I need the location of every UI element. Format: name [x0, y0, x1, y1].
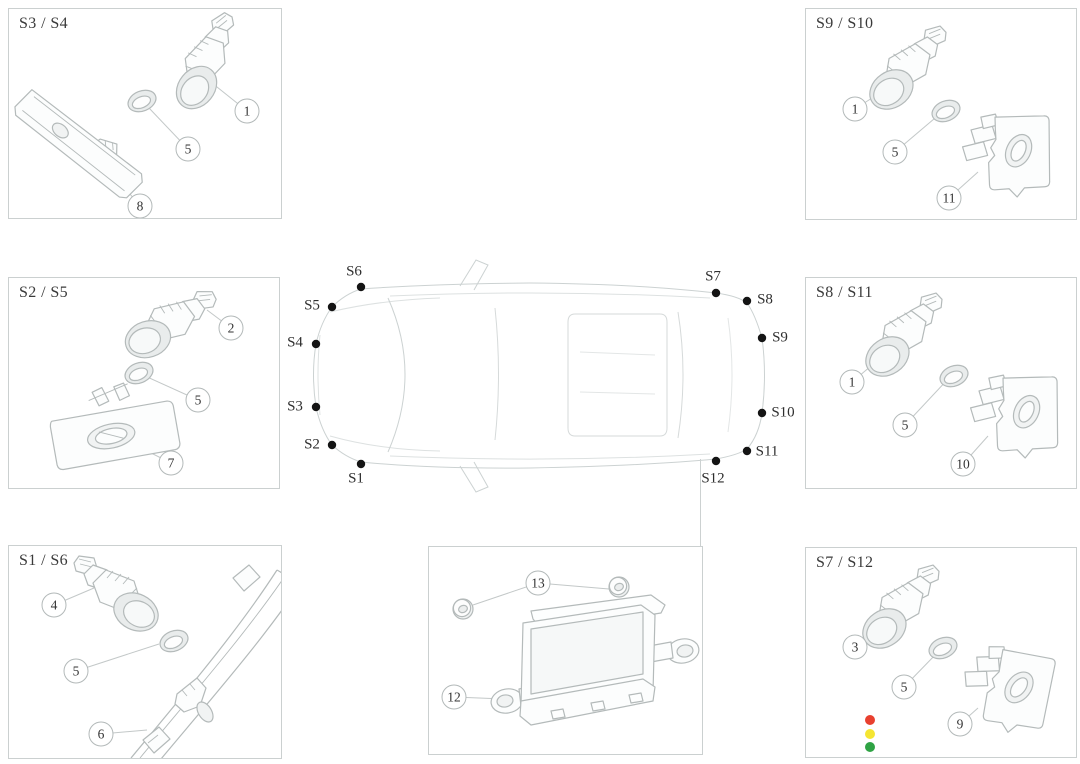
decoupling-ring-icon	[125, 86, 159, 115]
decoupling-ring-icon	[929, 96, 963, 125]
callout-part-1[interactable]: 1	[235, 99, 260, 124]
sensor-dot-s4	[312, 340, 320, 348]
sensor-label-s4: S4	[287, 335, 303, 352]
sensor-dot-s8	[743, 297, 751, 305]
callout-part-8[interactable]: 8	[128, 194, 153, 219]
sensor-dot-s9	[758, 334, 766, 342]
sensor-icon	[851, 292, 952, 386]
grommet-icon	[609, 577, 629, 597]
bumper-section-icon	[131, 565, 281, 758]
panel-s8-s11-label: S8 / S11	[816, 284, 873, 302]
sensor-label-s2: S2	[304, 437, 320, 454]
panel-s7-s12: S7 / S12 3 5 9	[805, 547, 1077, 758]
callout-part-11[interactable]: 11	[937, 186, 962, 211]
decoupling-ring-icon	[937, 361, 971, 390]
sensor-label-s9: S9	[772, 330, 788, 347]
callout-part-5[interactable]: 5	[893, 413, 918, 438]
callout-part-5[interactable]: 5	[176, 137, 201, 162]
legend-red-dot	[865, 715, 875, 725]
callout-part-10[interactable]: 10	[951, 452, 976, 477]
sensor-dot-s7	[712, 289, 720, 297]
parking-sensor-parts-diagram: { "panels": { "s3s4": {"label": "S3 / S4…	[0, 0, 1080, 764]
sensor-dot-s3	[312, 403, 320, 411]
sensor-label-s1: S1	[348, 471, 364, 488]
callout-part-12[interactable]: 12	[442, 685, 467, 710]
callout-part-6[interactable]: 6	[89, 722, 114, 747]
panel-s1-s6-art	[9, 546, 281, 758]
callout-part-13[interactable]: 13	[526, 571, 551, 596]
decoupling-ring-icon	[926, 633, 960, 662]
sensor-label-s5: S5	[304, 298, 320, 315]
bracket-rail-icon	[11, 78, 150, 205]
callout-part-5[interactable]: 5	[883, 140, 908, 165]
sensor-label-s6: S6	[346, 264, 362, 281]
sensor-label-s12: S12	[701, 471, 724, 488]
sensor-icon	[74, 556, 165, 638]
panel-s2-s5: S2 / S5 2 5 7	[8, 277, 280, 489]
sensor-icon	[116, 280, 217, 374]
panel-s3-s4: S3 / S4 1 5 8	[8, 8, 282, 219]
car-body-outline	[314, 260, 765, 492]
callout-part-3[interactable]: 3	[843, 635, 868, 660]
callout-part-4[interactable]: 4	[42, 593, 67, 618]
sensor-label-s10: S10	[771, 405, 794, 422]
control-module-icon	[489, 595, 701, 725]
callout-part-1[interactable]: 1	[840, 370, 865, 395]
bracket-plate-icon	[965, 366, 1067, 462]
legend-yellow-dot	[865, 729, 875, 739]
panel-s2-s5-label: S2 / S5	[19, 284, 68, 302]
sensor-dot-s12	[712, 457, 720, 465]
callout-part-5[interactable]: 5	[64, 659, 89, 684]
callout-part-2[interactable]: 2	[219, 316, 244, 341]
sensor-label-s8: S8	[757, 292, 773, 309]
decoupling-ring-icon	[122, 358, 156, 387]
panel-s3-s4-label: S3 / S4	[19, 15, 68, 33]
callout-part-7[interactable]: 7	[159, 451, 184, 476]
side-mirror-icon	[460, 462, 488, 492]
panel-s9-s10-label: S9 / S10	[816, 15, 873, 33]
legend-green-dot	[865, 742, 875, 752]
car-top-view-diagram	[290, 250, 790, 495]
sensor-position-dots	[312, 283, 766, 468]
sensor-dot-s1	[357, 460, 365, 468]
panel-s1-s6: S1 / S6 4 5 6	[8, 545, 282, 759]
sensor-label-s3: S3	[287, 399, 303, 416]
panel-s8-s11: S8 / S11 1 5 10	[805, 277, 1077, 489]
callout-part-5[interactable]: 5	[186, 388, 211, 413]
panel-control-module-art	[429, 547, 702, 754]
sensor-dot-s5	[328, 303, 336, 311]
panel-s2-s5-art	[9, 278, 279, 488]
sensor-label-s11: S11	[756, 444, 779, 461]
sensor-dot-s6	[357, 283, 365, 291]
decoupling-ring-icon	[157, 626, 191, 655]
sensor-label-s7: S7	[705, 269, 721, 286]
grommet-icon	[453, 599, 473, 619]
callout-part-5[interactable]: 5	[892, 675, 917, 700]
sensor-dot-s2	[328, 441, 336, 449]
sensor-dot-s10	[758, 409, 766, 417]
callout-part-1[interactable]: 1	[843, 97, 868, 122]
side-mirror-icon	[460, 260, 488, 290]
panel-s7-s12-label: S7 / S12	[816, 554, 873, 572]
sensor-dot-s11	[743, 447, 751, 455]
panel-s9-s10: S9 / S10 1 5 11	[805, 8, 1077, 220]
panel-s1-s6-label: S1 / S6	[19, 552, 68, 570]
panel-control-module: 13 12	[428, 546, 703, 755]
bracket-plate-icon	[957, 105, 1059, 201]
callout-part-9[interactable]: 9	[948, 712, 973, 737]
